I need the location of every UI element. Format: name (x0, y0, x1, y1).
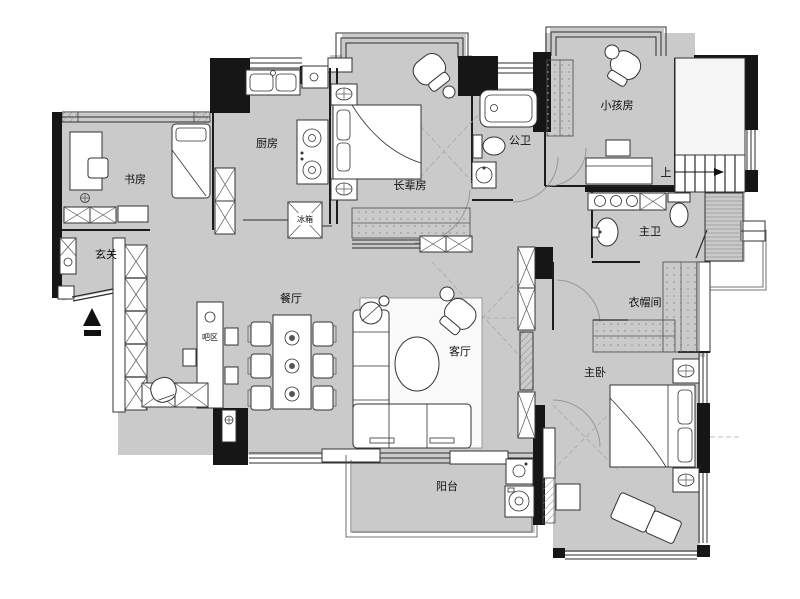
nightstand-icon (673, 359, 699, 383)
kitchen-corner-unit (302, 66, 328, 88)
tv-icon (520, 332, 533, 390)
kitchen-cabinet-icon (215, 168, 235, 234)
study-cabinet-icon (64, 206, 148, 223)
fridge-label: 冰箱 (297, 214, 313, 224)
label-entry: 玄关 (95, 247, 117, 261)
shower-icon (705, 193, 743, 261)
stairs-window (747, 128, 755, 170)
label-dining: 餐厅 (280, 291, 302, 305)
tv-wall (518, 247, 535, 438)
dining-furniture (248, 315, 336, 410)
master-toilet-icon (668, 193, 690, 227)
balcony-fixtures (505, 459, 534, 517)
label-balcony: 阳台 (436, 479, 458, 493)
label-master: 主卧 (584, 366, 606, 379)
slider-panel (450, 451, 508, 464)
balcony-sink-icon (506, 459, 533, 484)
stove-icon (297, 120, 328, 184)
bar-stool-icon (183, 349, 196, 366)
bar-stool-icon (225, 328, 238, 345)
label-masterbath: 主卫 (639, 225, 661, 238)
masterbath-cabinet (640, 193, 666, 210)
master-bed-icon (610, 385, 695, 467)
vanity-icon (588, 193, 640, 210)
kids-desk-icon (586, 158, 652, 184)
kids-shelf-icon (606, 140, 630, 156)
tv-board-icon (543, 428, 555, 478)
nightstand-icon (331, 179, 357, 200)
desk-chair-icon (88, 158, 108, 178)
floor-plan-drawing: 冰箱 (0, 0, 800, 599)
elder-bed-icon (333, 105, 421, 179)
label-study: 书房 (124, 173, 146, 186)
shoe-cabinet-icon (60, 238, 76, 274)
kids-wardrobe-icon (547, 60, 573, 136)
nightstand-icon (673, 468, 699, 492)
nightstand-icon (331, 84, 357, 105)
washing-machine-icon (505, 486, 534, 517)
stairs-icon (675, 155, 745, 192)
label-cloakroom: 衣帽间 (629, 295, 662, 309)
bathtub-icon (480, 90, 537, 127)
dresser-icon (556, 484, 580, 510)
kitchen-sink-icon (246, 70, 300, 95)
bar-stool-icon (225, 367, 238, 384)
dining-table-icon (273, 315, 311, 409)
label-living: 客厅 (449, 344, 471, 358)
bath-sink-icon (472, 162, 496, 188)
label-elder: 长辈房 (394, 178, 427, 192)
label-kitchen: 厨房 (256, 137, 278, 150)
side-table-icon (443, 86, 455, 98)
coffee-table-icon (395, 337, 439, 391)
publicbath-window (498, 63, 533, 73)
elder-wardrobe-icon (352, 208, 470, 238)
master-bottom-window (565, 551, 697, 559)
floor-plan: 冰箱 (0, 0, 800, 599)
label-kids: 小孩房 (601, 99, 634, 112)
stairs-up-label: 上 (661, 166, 672, 179)
speaker-icon (222, 410, 236, 442)
label-publicbath: 公卫 (509, 134, 531, 147)
fridge-icon: 冰箱 (288, 202, 322, 238)
kids-lamp-icon (605, 45, 619, 59)
hall-north-floor (472, 200, 545, 232)
side-table-icon (440, 287, 454, 301)
daybed-icon (172, 124, 210, 198)
label-bar: 吧区 (202, 333, 218, 342)
kitchen-window (250, 58, 302, 68)
main-living-floor (118, 228, 555, 455)
elder-south-cabinet (420, 236, 472, 252)
master-cabinet-icon (543, 478, 555, 523)
